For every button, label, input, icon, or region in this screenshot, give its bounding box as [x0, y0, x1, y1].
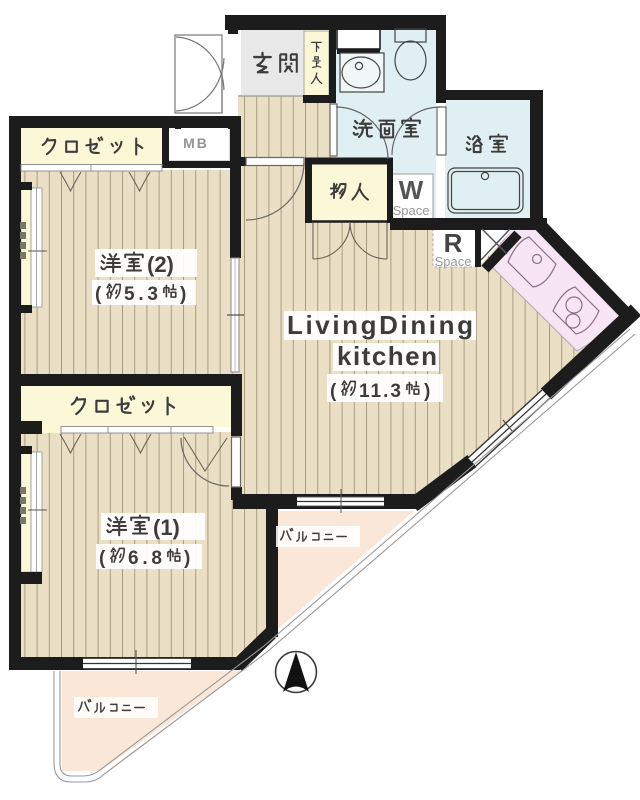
svg-text:5.3: 5.3: [124, 284, 158, 305]
svg-text:kitchen: kitchen: [337, 341, 437, 371]
svg-text:(: (: [95, 284, 102, 305]
svg-text:): ): [424, 381, 430, 402]
svg-text:Space: Space: [393, 203, 430, 218]
svg-text:(2): (2): [147, 252, 174, 277]
svg-text:(: (: [330, 381, 337, 402]
svg-text:11.3: 11.3: [359, 381, 401, 402]
svg-text:W: W: [399, 175, 424, 205]
svg-text:6.8: 6.8: [128, 548, 162, 569]
svg-text:(: (: [99, 548, 106, 569]
svg-text:(1): (1): [153, 515, 180, 540]
svg-text:Space: Space: [435, 254, 472, 269]
svg-text:LivingDining: LivingDining: [287, 310, 473, 340]
svg-text:MB: MB: [183, 135, 209, 151]
svg-text:): ): [180, 284, 186, 305]
svg-text:): ): [184, 548, 190, 569]
